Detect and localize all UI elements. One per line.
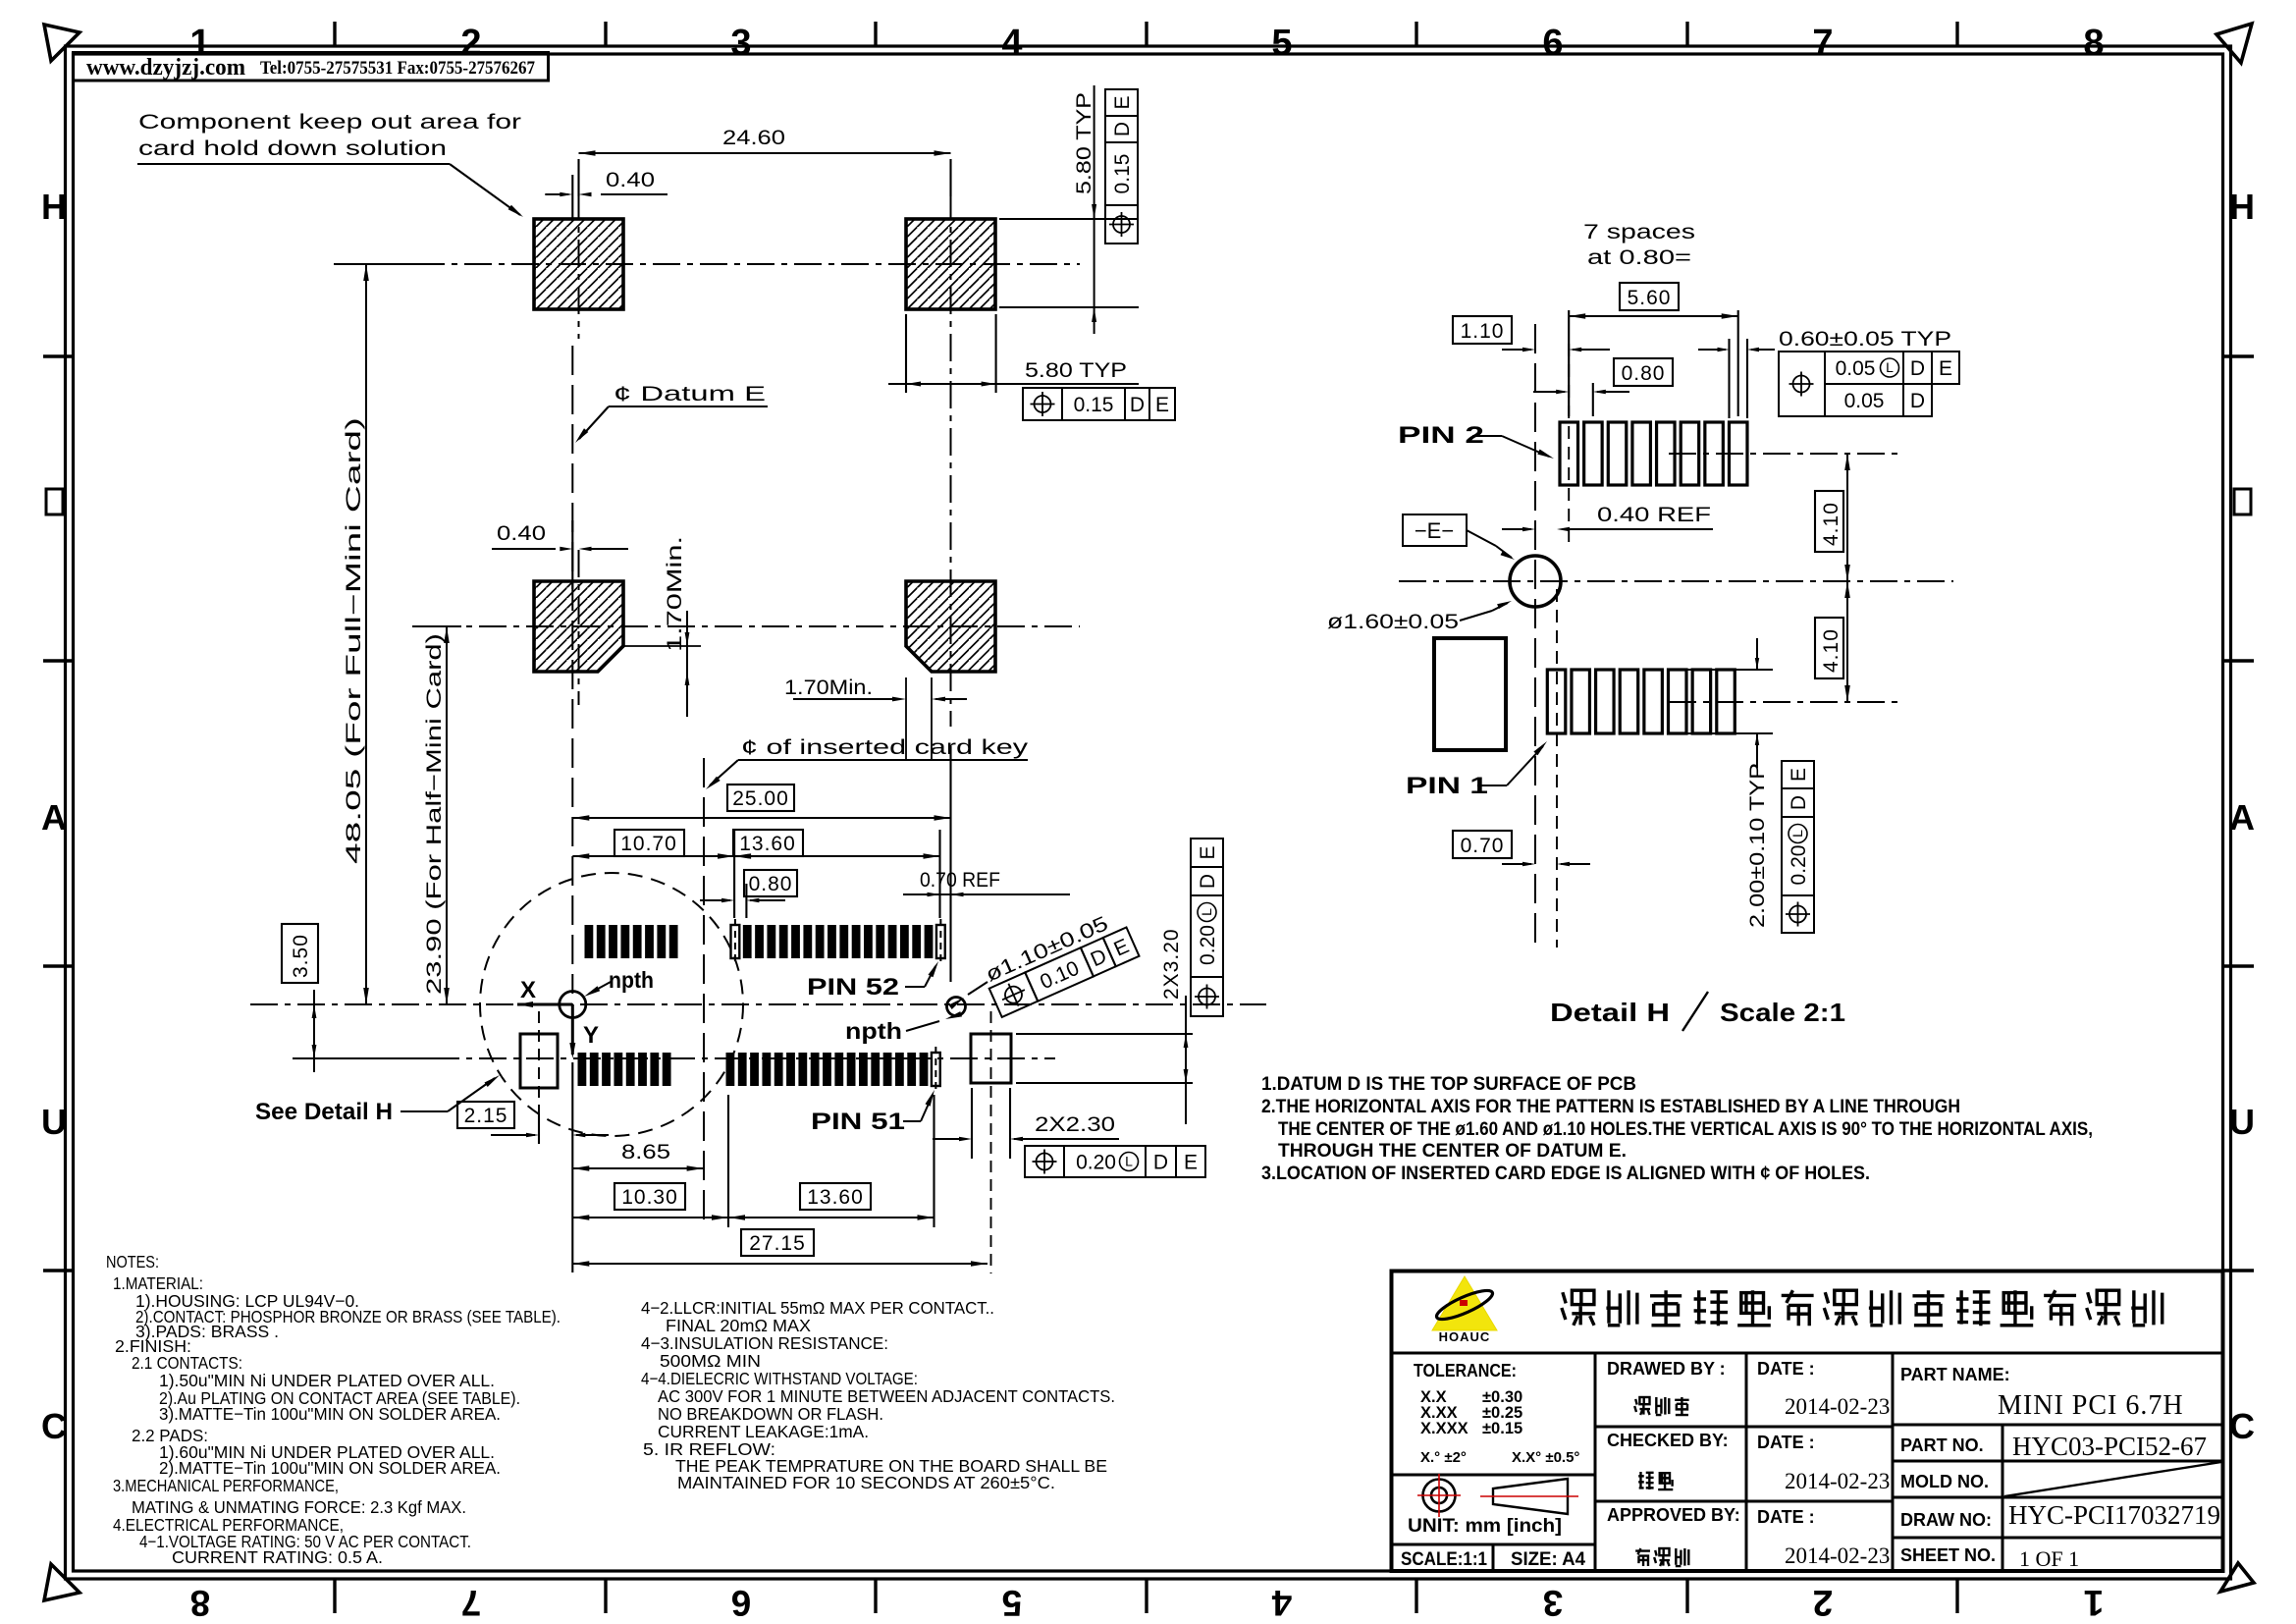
svg-text:HYC-PCI17032719: HYC-PCI17032719 <box>2008 1500 2220 1530</box>
svg-text:DRAW NO:: DRAW NO: <box>1900 1510 1992 1530</box>
svg-text:2: 2 <box>1813 1583 1834 1623</box>
svg-text:2014-02-23: 2014-02-23 <box>1785 1469 1890 1493</box>
svg-text:1.MATERIAL:: 1.MATERIAL: <box>113 1273 203 1293</box>
svg-text:2014-02-23: 2014-02-23 <box>1785 1394 1890 1419</box>
svg-text:A: A <box>2229 797 2255 838</box>
svg-text:10.30: 10.30 <box>621 1186 678 1209</box>
svg-text:C: C <box>41 1406 67 1446</box>
svg-text:4: 4 <box>1271 1583 1292 1623</box>
svg-text:PART NAME:: PART NAME: <box>1900 1365 2010 1384</box>
svg-text:U: U <box>41 1102 67 1142</box>
svg-text:1.70Min.: 1.70Min. <box>664 536 686 652</box>
svg-text:MAINTAINED FOR 10 SECONDS: MAINTAINED FOR 10 SECONDS AT 260±5°C. <box>677 1473 1055 1492</box>
svg-text:L: L <box>1125 1154 1133 1169</box>
svg-text:13.60: 13.60 <box>807 1186 864 1209</box>
svg-text:0.80: 0.80 <box>1622 362 1666 385</box>
svg-text:SCALE:1:1: SCALE:1:1 <box>1401 1549 1487 1570</box>
svg-text:0.70 REF: 0.70 REF <box>920 869 1000 892</box>
svg-text:X: X <box>520 977 536 1003</box>
svg-text:0.20: 0.20 <box>1197 925 1219 965</box>
svg-text:PIN 51: PIN 51 <box>811 1109 905 1135</box>
svg-text:0.60±0.05 TYP: 0.60±0.05 TYP <box>1779 328 1951 351</box>
svg-text:4: 4 <box>1001 23 1022 64</box>
svg-text:10.70: 10.70 <box>620 833 677 855</box>
svg-text:23.90 (For Half−Mini Card): 23.90 (For Half−Mini Card) <box>423 633 446 995</box>
svg-text:5.80 TYP: 5.80 TYP <box>1073 92 1095 194</box>
svg-text:E: E <box>1155 394 1169 416</box>
svg-text:DRAWED BY :: DRAWED BY : <box>1607 1359 1726 1379</box>
svg-text:D: D <box>1111 122 1134 136</box>
svg-text:¢ Datum E: ¢ Datum E <box>614 383 766 406</box>
svg-text:0.15: 0.15 <box>1111 154 1134 194</box>
svg-text:7 spaces: 7 spaces <box>1583 221 1695 244</box>
svg-text:E: E <box>1111 95 1134 109</box>
svg-text:7: 7 <box>1812 23 1833 64</box>
svg-text:A: A <box>41 797 67 838</box>
svg-text:Scale 2:1: Scale 2:1 <box>1720 998 1845 1027</box>
svg-text:CURRENT RATING: 0.5 A.: CURRENT RATING: 0.5 A. <box>172 1547 383 1567</box>
svg-text:3: 3 <box>1543 1583 1564 1623</box>
svg-text:www.dzyjzj.com: www.dzyjzj.com <box>86 55 245 81</box>
svg-text:4−3.INSULATION RESISTANCE:: 4−3.INSULATION RESISTANCE: <box>641 1333 888 1353</box>
svg-text:CURRENT LEAKAGE:1mA.: CURRENT LEAKAGE:1mA. <box>658 1422 869 1441</box>
svg-text:5: 5 <box>1271 23 1292 64</box>
svg-text:3.LOCATION OF INSERTED CARD: 3.LOCATION OF INSERTED CARD EDGE IS ALIG… <box>1261 1164 1870 1184</box>
svg-text:2.THE HORIZONTAL AXIS FOR: 2.THE HORIZONTAL AXIS FOR THE PATTERN IS… <box>1261 1097 1960 1117</box>
svg-text:THROUGH THE CENTER OF DATU: THROUGH THE CENTER OF DATUM E. <box>1278 1141 1627 1162</box>
svg-text:C: C <box>2229 1406 2255 1446</box>
svg-text:¢ of inserted card key: ¢ of inserted card key <box>741 736 1029 759</box>
svg-text:D: D <box>1910 357 1925 380</box>
svg-text:See Detail H: See Detail H <box>255 1099 393 1125</box>
svg-text:DATE :: DATE : <box>1757 1359 1815 1379</box>
svg-text:0.70: 0.70 <box>1461 835 1505 857</box>
svg-text:HYC03-PCI52-67: HYC03-PCI52-67 <box>2012 1432 2207 1461</box>
svg-text:8.65: 8.65 <box>621 1141 670 1164</box>
svg-text:2).MATTE−Tin 100u"MIN ON SO: 2).MATTE−Tin 100u"MIN ON SOLDER AREA. <box>159 1458 501 1478</box>
svg-text:27.15: 27.15 <box>749 1232 806 1255</box>
svg-text:0.05: 0.05 <box>1844 390 1885 412</box>
svg-text:24.60: 24.60 <box>722 127 785 149</box>
svg-text:5.80 TYP: 5.80 TYP <box>1025 359 1127 382</box>
svg-text:UNIT: mm [inch]: UNIT: mm [inch] <box>1408 1516 1562 1537</box>
svg-text:AC 300V FOR 1 MINUTE BETW: AC 300V FOR 1 MINUTE BETWEEN ADJACENT CO… <box>658 1386 1115 1406</box>
svg-text:−E−: −E− <box>1415 518 1454 543</box>
svg-text:CHECKED BY:: CHECKED BY: <box>1607 1431 1729 1450</box>
svg-text:npth: npth <box>609 967 654 993</box>
svg-text:NOTES:: NOTES: <box>106 1252 159 1272</box>
svg-text:D: D <box>1910 390 1925 412</box>
svg-text:500MΩ MIN: 500MΩ MIN <box>660 1351 761 1371</box>
svg-text:HOAUC: HOAUC <box>1439 1329 1491 1344</box>
svg-text:ø1.60±0.05: ø1.60±0.05 <box>1327 611 1459 633</box>
svg-text:MINI PCI 6.7H: MINI PCI 6.7H <box>1998 1390 2184 1421</box>
svg-text:E: E <box>1184 1152 1198 1174</box>
svg-text:0.20: 0.20 <box>1788 845 1810 886</box>
svg-text:2X3.20: 2X3.20 <box>1160 928 1183 1000</box>
svg-text:D: D <box>1130 394 1145 416</box>
svg-text:0.40: 0.40 <box>497 522 546 545</box>
svg-text:1).50u"MIN Ni UNDER PLATED: 1).50u"MIN Ni UNDER PLATED OVER ALL. <box>159 1371 495 1390</box>
svg-text:3: 3 <box>730 23 751 64</box>
svg-text:Tel:0755-27575531 Fax:0755-27: Tel:0755-27575531 Fax:0755-27576267 <box>260 58 535 79</box>
svg-text:H: H <box>2229 187 2255 227</box>
svg-text:2.1 CONTACTS:: 2.1 CONTACTS: <box>132 1353 242 1373</box>
svg-text:TOLERANCE:: TOLERANCE: <box>1414 1361 1517 1380</box>
svg-text:DATE :: DATE : <box>1757 1507 1815 1527</box>
svg-text:1.70Min.: 1.70Min. <box>784 677 873 699</box>
svg-text:PIN 1: PIN 1 <box>1406 773 1488 799</box>
svg-text:1.10: 1.10 <box>1461 320 1505 343</box>
svg-text:0.15: 0.15 <box>1074 394 1114 416</box>
svg-text:4−2.LLCR:INITIAL 55mΩ MAX P: 4−2.LLCR:INITIAL 55mΩ MAX PER CONTACT.. <box>641 1298 994 1318</box>
svg-text:D: D <box>1153 1152 1168 1174</box>
svg-text:npth: npth <box>845 1018 902 1044</box>
svg-text:±0.15: ±0.15 <box>1482 1420 1522 1437</box>
svg-text:7: 7 <box>461 1583 482 1623</box>
svg-text:3.MECHANICAL PERFORMANCE,: 3.MECHANICAL PERFORMANCE, <box>113 1476 339 1495</box>
svg-text:Y: Y <box>583 1022 599 1049</box>
svg-text:X.° ±2°: X.° ±2° <box>1420 1449 1467 1466</box>
svg-text:4.10: 4.10 <box>1820 628 1842 673</box>
svg-text:E: E <box>1939 357 1952 380</box>
svg-text:E: E <box>1788 768 1810 782</box>
svg-text:3).MATTE−Tin 100u"MIN ON SO: 3).MATTE−Tin 100u"MIN ON SOLDER AREA. <box>159 1404 501 1424</box>
svg-text:PIN 52: PIN 52 <box>807 974 899 1001</box>
svg-text:4.10: 4.10 <box>1820 502 1842 546</box>
svg-text:SHEET NO.: SHEET NO. <box>1900 1545 1996 1565</box>
svg-text:5: 5 <box>1002 1583 1023 1623</box>
svg-text:at 0.80=: at 0.80= <box>1587 246 1691 269</box>
svg-text:PIN 2: PIN 2 <box>1398 422 1484 449</box>
svg-text:25.00: 25.00 <box>732 787 789 810</box>
svg-text:X.XXX: X.XXX <box>1420 1420 1468 1437</box>
svg-text:5.60: 5.60 <box>1628 287 1672 309</box>
svg-text:Component keep out area fo: Component keep out area for <box>138 110 521 134</box>
svg-text:DATE :: DATE : <box>1757 1433 1815 1452</box>
svg-text:1: 1 <box>2084 1583 2105 1623</box>
svg-text:L: L <box>1789 830 1805 838</box>
svg-text:8: 8 <box>2083 23 2104 64</box>
svg-text:Detail H: Detail H <box>1550 998 1670 1027</box>
svg-text:0.20: 0.20 <box>1076 1152 1116 1174</box>
svg-text:0.80: 0.80 <box>749 873 793 895</box>
svg-text:D: D <box>1788 795 1810 810</box>
svg-text:0.40: 0.40 <box>606 169 655 191</box>
svg-text:card hold down solution: card hold down solution <box>138 136 447 160</box>
svg-text:FINAL 20mΩ MAX: FINAL 20mΩ MAX <box>666 1316 811 1335</box>
svg-text:NO BREAKDOWN OR FLASH.: NO BREAKDOWN OR FLASH. <box>658 1404 883 1424</box>
svg-text:13.60: 13.60 <box>739 833 796 855</box>
svg-text:2.15: 2.15 <box>464 1105 508 1127</box>
svg-text:L: L <box>1199 908 1214 916</box>
svg-text:2.00±0.10 TYP: 2.00±0.10 TYP <box>1746 763 1769 928</box>
svg-text:3.50: 3.50 <box>290 934 312 978</box>
svg-text:APPROVED BY:: APPROVED BY: <box>1607 1505 1740 1525</box>
svg-text:E: E <box>1197 845 1219 859</box>
svg-text:PART NO.: PART NO. <box>1900 1435 1984 1455</box>
svg-text:MOLD NO.: MOLD NO. <box>1900 1472 1989 1491</box>
svg-text:THE CENTER OF THE ø1.60 A: THE CENTER OF THE ø1.60 AND ø1.10 HOLES.… <box>1278 1119 2093 1140</box>
svg-text:1 OF 1: 1 OF 1 <box>2019 1546 2079 1571</box>
svg-text:8: 8 <box>190 1583 211 1623</box>
svg-text:L: L <box>1886 359 1894 375</box>
svg-text:6: 6 <box>731 1583 752 1623</box>
svg-text:H: H <box>41 187 67 227</box>
svg-text:6: 6 <box>1542 23 1563 64</box>
svg-text:4−4.DIELECRIC WITHSTAND VOLT: 4−4.DIELECRIC WITHSTAND VOLTAGE: <box>641 1369 918 1388</box>
svg-text:X.X° ±0.5°: X.X° ±0.5° <box>1512 1449 1579 1466</box>
svg-text:0.40 REF: 0.40 REF <box>1597 504 1711 526</box>
svg-text:U: U <box>2229 1102 2255 1142</box>
svg-text:MATING & UNMATING FORCE: 2: MATING & UNMATING FORCE: 2.3 Kgf MAX. <box>132 1497 466 1517</box>
svg-text:D: D <box>1197 874 1219 889</box>
svg-text:1.DATUM D IS THE TOP SURF: 1.DATUM D IS THE TOP SURFACE OF PCB <box>1261 1074 1636 1095</box>
svg-text:0.05: 0.05 <box>1836 357 1876 380</box>
svg-text:SIZE: A4: SIZE: A4 <box>1511 1549 1585 1570</box>
svg-text:2X2.30: 2X2.30 <box>1035 1113 1115 1136</box>
svg-text:2014-02-23: 2014-02-23 <box>1785 1543 1890 1568</box>
svg-text:48.05 (For Full−Mini Card): 48.05 (For Full−Mini Card) <box>343 417 365 864</box>
